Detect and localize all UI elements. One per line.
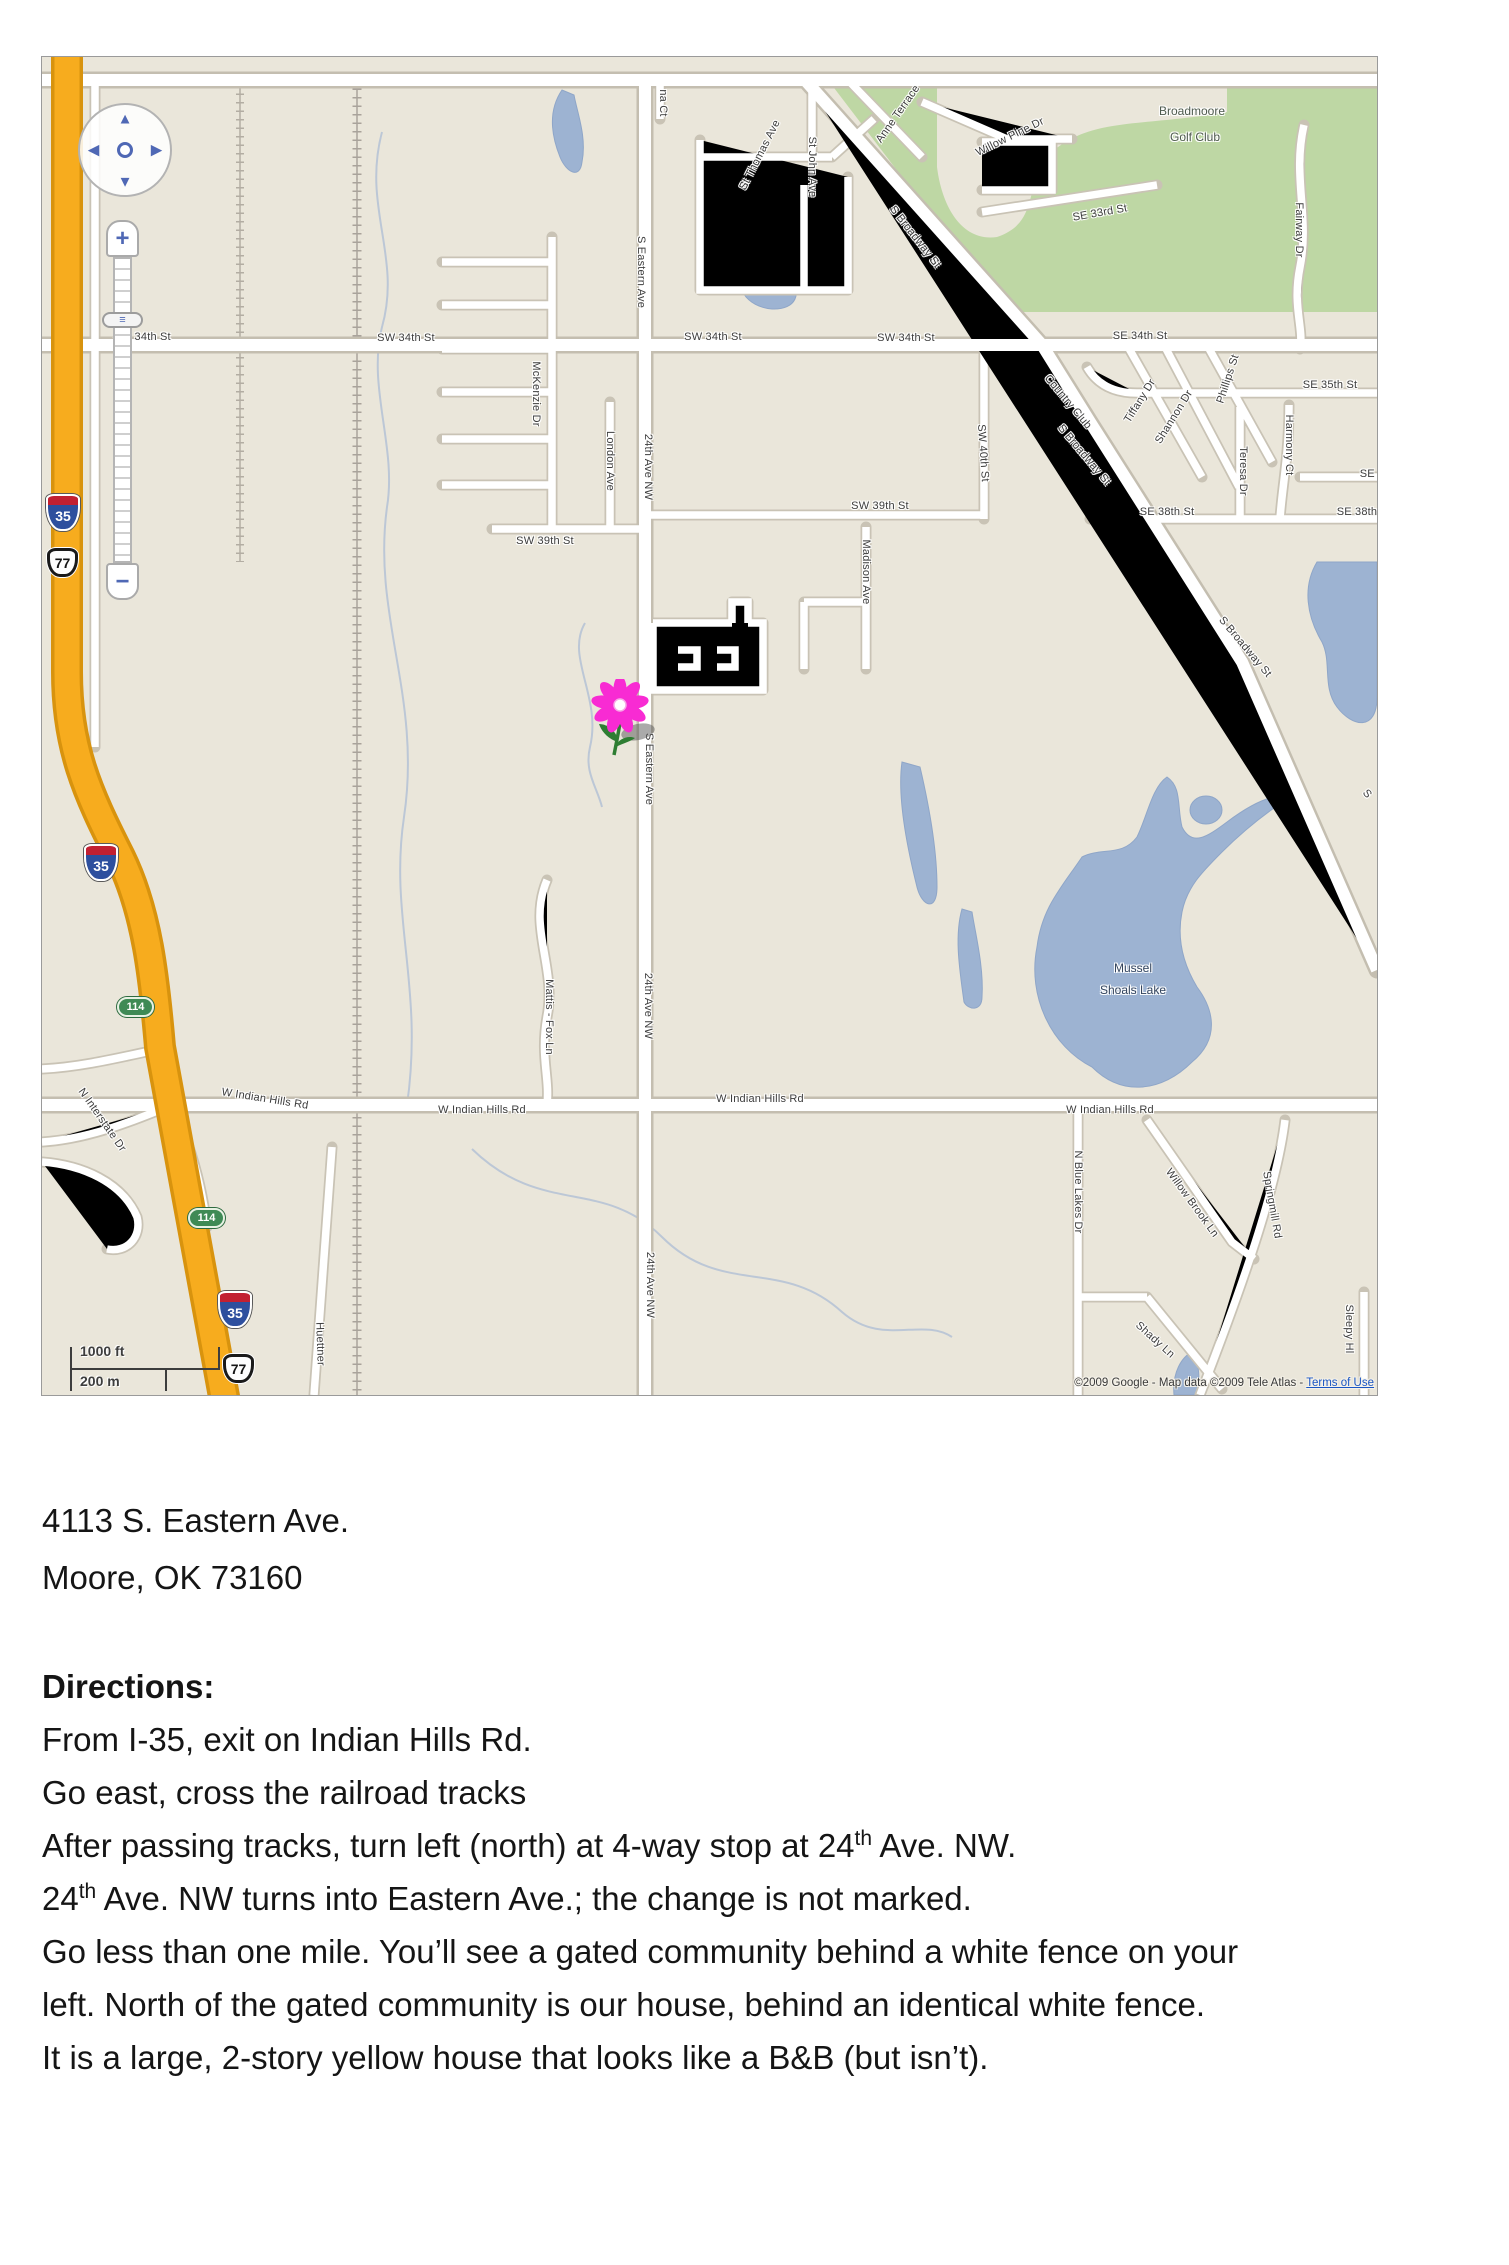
- us-77-shield: 77: [47, 548, 78, 577]
- street-label: Huettner: [313, 1322, 327, 1366]
- zoom-out-button[interactable]: −: [106, 563, 139, 600]
- flower-marker-icon: [590, 679, 664, 761]
- directions-block: Directions: From I-35, exit on Indian Hi…: [42, 1660, 1238, 2084]
- pan-up-icon[interactable]: ▲: [118, 111, 133, 126]
- street-label: SE 34th St: [1113, 330, 1168, 342]
- directions-line: Go less than one mile. You’ll see a gate…: [42, 1925, 1238, 1978]
- street-label: S Eastern Ave: [635, 236, 647, 308]
- pan-right-icon[interactable]: ▶: [151, 143, 163, 158]
- street-label: McKenzie Dr: [530, 361, 542, 426]
- street-label: London Ave: [604, 431, 616, 491]
- scale-meters-label: 200 m: [80, 1373, 120, 1389]
- map-copyright: ©2009 Google - Map data ©2009 Tele Atlas…: [1074, 1377, 1374, 1389]
- pan-down-icon[interactable]: ▼: [118, 174, 133, 189]
- pan-center-icon[interactable]: [117, 142, 133, 158]
- street-label: 24th Ave NW: [642, 973, 654, 1039]
- street-label: SW 34th St: [684, 331, 742, 343]
- street-label: SE 38th St: [1140, 506, 1195, 518]
- zoom-slider-track[interactable]: [113, 257, 132, 563]
- pan-control[interactable]: ▲ ▼ ◀ ▶: [78, 103, 172, 197]
- pan-left-icon[interactable]: ◀: [88, 143, 100, 158]
- lake-label: Shoals Lake: [1100, 983, 1166, 997]
- street-label: 24th Ave NW: [644, 1252, 656, 1318]
- street-label: SE 35th St: [1303, 379, 1358, 391]
- railroad-tracks: [240, 80, 357, 1395]
- directions-line: From I-35, exit on Indian Hills Rd.: [42, 1713, 1238, 1766]
- street-label: SW 34th St: [377, 332, 435, 344]
- terms-of-use-link[interactable]: Terms of Use: [1306, 1377, 1374, 1389]
- street-label: N Blue Lakes Dr: [1072, 1150, 1084, 1233]
- directions-line: left. North of the gated community is ou…: [42, 1978, 1238, 2031]
- street-label: 24th Ave NW: [642, 434, 654, 500]
- street-label: W Indian Hills Rd: [438, 1104, 526, 1116]
- street-label: Mattis - Fox Ln: [543, 979, 555, 1055]
- address-block: 4113 S. Eastern Ave. Moore, OK 73160: [42, 1492, 349, 1606]
- street-label: Sleepy Hl: [1343, 1305, 1355, 1354]
- address-line2: Moore, OK 73160: [42, 1549, 349, 1606]
- scale-bar: 1000 ft 200 m: [66, 1337, 236, 1396]
- street-label: SW 39th St: [516, 535, 574, 547]
- ok-114-shield: 114: [188, 1208, 225, 1228]
- google-map[interactable]: SW 34th St SW 34th St SW 34th St SW 34th…: [41, 56, 1378, 1396]
- lake-label: Mussel: [1114, 961, 1152, 975]
- creek: [376, 132, 952, 1337]
- street-label: SE 37th St: [1360, 468, 1378, 480]
- ok-114-shield: 114: [117, 997, 154, 1017]
- directions-line: Go east, cross the railroad tracks: [42, 1766, 1238, 1819]
- street-label: SW 34th St: [877, 332, 935, 344]
- map-canvas: [42, 57, 1377, 1395]
- address-line1: 4113 S. Eastern Ave.: [42, 1492, 349, 1549]
- zoom-in-button[interactable]: +: [106, 220, 139, 257]
- zoom-slider-handle[interactable]: ≡: [102, 312, 143, 328]
- street-label: na Ct: [657, 89, 669, 116]
- directions-document: SW 34th St SW 34th St SW 34th St SW 34th…: [0, 0, 1509, 2265]
- street-label: SW 39th St: [851, 500, 909, 512]
- directions-line: 24th Ave. NW turns into Eastern Ave.; th…: [42, 1872, 1238, 1925]
- directions-heading: Directions:: [42, 1660, 1238, 1713]
- street-label: Fairway Dr: [1293, 202, 1305, 257]
- directions-line: After passing tracks, turn left (north) …: [42, 1819, 1238, 1872]
- street-label: St John Ave: [806, 137, 818, 198]
- copyright-text: ©2009 Google - Map data ©2009 Tele Atlas…: [1074, 1377, 1306, 1389]
- golf-club-label: Broadmoore: [1159, 104, 1225, 118]
- street-label: Harmony Ct: [1283, 415, 1295, 476]
- directions-line: It is a large, 2-story yellow house that…: [42, 2031, 1238, 2084]
- street-label: W Indian Hills Rd: [716, 1093, 804, 1105]
- street-label: SE 38th St: [1337, 506, 1378, 518]
- golf-club-label: Golf Club: [1170, 130, 1220, 144]
- street-label: Teresa Dr: [1237, 446, 1249, 495]
- street-label: Madison Ave: [860, 540, 872, 605]
- scale-feet-label: 1000 ft: [80, 1343, 124, 1359]
- street-label: W Indian Hills Rd: [1066, 1104, 1154, 1116]
